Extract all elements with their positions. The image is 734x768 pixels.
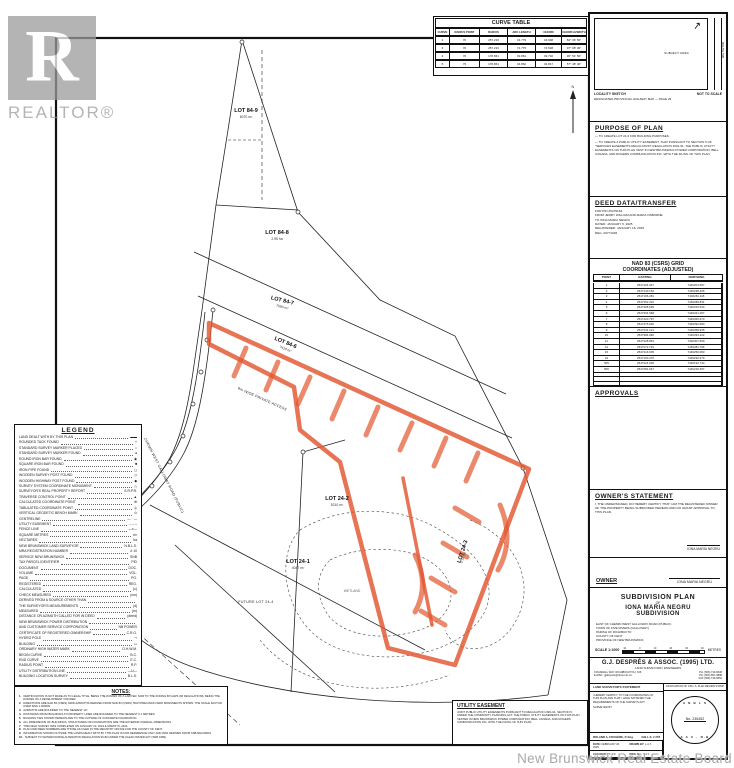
legend-leader bbox=[84, 449, 133, 450]
note-number: 1. bbox=[19, 695, 21, 701]
curve-table-rows: 270 257.21634.779 34.69884° 36' 50" 370 … bbox=[435, 36, 587, 68]
owner-row: OWNER IONA MARIA NEGRU bbox=[590, 558, 726, 588]
note-item: 2. DIRECTIONS ARE NAD 83 (CSRS) GRID AZI… bbox=[19, 702, 223, 708]
legend-leader bbox=[39, 542, 131, 543]
plan-location-line: PROVINCE OF NEW BRUNSWICK bbox=[596, 638, 720, 642]
scale-bar-row: SCALE 1:1000 10010203040 METRES bbox=[590, 645, 726, 658]
north-arrow-icon bbox=[570, 90, 576, 133]
legend-items: LAND DEALT WITH BY THIS PLAN ▬▬ ROUNDED … bbox=[19, 435, 137, 680]
plan-title: SUBDIVISION PLAN OF IONA MARIA NEGRU SUB… bbox=[590, 588, 726, 619]
curve-table-row: 370 257.21674.775 74.52897° 08' 30" bbox=[435, 44, 587, 52]
curve-table-row: 476 178.86139.864 39.79236° 54' 50" bbox=[435, 52, 587, 60]
legend-leader bbox=[45, 667, 129, 668]
legend-leader bbox=[43, 640, 132, 641]
stamp-title: ASSOCIATION OF N.B.L.S. PLAN REVIEW STAM… bbox=[664, 684, 726, 691]
legend-leader bbox=[75, 509, 132, 510]
scale-units: METRES bbox=[708, 648, 721, 652]
realtor-logo-icon: R bbox=[8, 16, 96, 100]
curve-table-header-cell: CURVE bbox=[436, 28, 450, 35]
coords-title-2: COORDINATES (ADJUSTED) bbox=[593, 267, 723, 273]
notes: NOTES: 1. CERTIFICATION IS NOT MADE AS T… bbox=[14, 686, 228, 745]
deed-line: REG. 29771046 bbox=[595, 231, 721, 235]
legend-leader bbox=[94, 487, 132, 488]
legend-leader bbox=[61, 564, 129, 565]
legend-title: LEGEND bbox=[19, 427, 137, 434]
locality-subheading: DESIGNATED PROVINCIAL HIGHWAY MAP — PAGE… bbox=[594, 97, 722, 101]
firm-subtitle: LAND SURVEYORS / ENGINEERS bbox=[594, 666, 722, 670]
route-line: ROUTE 505 bbox=[714, 18, 722, 90]
statement-field: DRAWN BY: L.A.T. bbox=[627, 741, 664, 751]
owner-signature: IONA MARIA NEGRU bbox=[687, 545, 720, 551]
surveyor-name: ROLAND A. FOUGÈRE, P. Eng. bbox=[593, 735, 634, 739]
legend-leader bbox=[61, 444, 133, 445]
surveyor-statement-text: I HEREBY CERTIFY, TO THE COORDINATES OF … bbox=[590, 692, 663, 707]
legend-leader bbox=[50, 536, 131, 537]
map-label-sub: 5210 m² bbox=[331, 503, 344, 507]
legend-leader bbox=[37, 645, 132, 646]
locality-sketch: ↗ SUBJECT AREA ROUTE 505 LOCALITY SKETCH… bbox=[590, 14, 726, 122]
owner-label: OWNER bbox=[596, 578, 617, 584]
stamp-arc-bottom: A A C · N-B bbox=[680, 735, 709, 739]
legend-leader bbox=[67, 672, 126, 673]
note-number: 9. bbox=[19, 732, 21, 735]
locality-title: LOCALITY SKETCH bbox=[594, 92, 626, 96]
surveyor-statement-title: LAND SURVEYOR'S STATEMENT bbox=[590, 684, 663, 692]
legend-leader bbox=[75, 438, 128, 439]
note-item: 10. SUBJECT TO WATERCOURSE ALTERATION RE… bbox=[19, 736, 223, 739]
owner-statement: OWNER'S STATEMENT I, THE UNDERSIGNED, DO… bbox=[590, 490, 726, 558]
legend-leader bbox=[66, 558, 128, 559]
plan-location-lines: EAST OF CHEMIN WEST GALLOWAY ROAD (PUBLI… bbox=[590, 619, 726, 645]
curve-table-row: 576 178.86134.862 34.81757° 48' 40" bbox=[435, 60, 587, 68]
north-arrow-icon: ↗ bbox=[692, 20, 702, 32]
owner-statement-title: OWNER'S STATEMENT bbox=[595, 493, 721, 500]
legend-symbol: (cm) bbox=[130, 593, 137, 598]
legend-leader bbox=[87, 493, 122, 494]
note-item: 9. INFORMATION SHOWN OUTSIDE THE LANDS D… bbox=[19, 732, 223, 735]
legend-leader bbox=[35, 574, 127, 575]
note-item: 1. CERTIFICATION IS NOT MADE AS TO LEGAL… bbox=[19, 695, 223, 701]
firm-address-col: 9 RANDALL WAY, RICHIBOUCTOU, N.B. E-MAIL… bbox=[594, 671, 642, 681]
purpose-item: — TO CREATE LOT 24-3 FOR BUILDING PURPOS… bbox=[595, 134, 721, 138]
curve-table-header-cell: ARC LENGTH bbox=[508, 28, 536, 35]
curve-table-header-cell: RADIUS POINT bbox=[450, 28, 480, 35]
legend-leader bbox=[88, 602, 135, 603]
stamp-arc-top: A N B L S bbox=[683, 701, 707, 705]
legend-leader bbox=[80, 515, 133, 516]
curve-table-headers: CURVERADIUS POINTRADIUSARC LENGTHCHORDCH… bbox=[435, 28, 587, 36]
map-label: LOT 24-2 bbox=[325, 496, 349, 502]
note-item: 4. DISTANCES FROM BUILDINGS TO PROPERTY … bbox=[19, 713, 223, 716]
note-number: 4. bbox=[19, 713, 21, 716]
owner-statement-text: I, THE UNDERSIGNED, DO HEREBY CERTIFY TH… bbox=[595, 502, 721, 515]
legend-leader bbox=[41, 661, 128, 662]
curve-table-row: 270 257.21634.779 34.69884° 36' 50" bbox=[435, 36, 587, 44]
legend-leader bbox=[66, 466, 133, 467]
scale-label: SCALE 1:1000 bbox=[595, 648, 619, 652]
legend-leader bbox=[41, 569, 127, 570]
surveyor-statement: LAND SURVEYOR'S STATEMENT I HEREBY CERTI… bbox=[590, 684, 664, 758]
note-number: 3. bbox=[19, 709, 21, 712]
coords-easting bbox=[620, 382, 671, 387]
utility-easement: UTILITY EASEMENT JOINT PUBLIC UTILITY EA… bbox=[452, 700, 588, 745]
curve-table: CURVE TABLE CURVERADIUS POINTRADIUSARC L… bbox=[433, 16, 589, 76]
surveyed-by-label: SURVEYED BY bbox=[590, 706, 663, 732]
map-label-sub: 2.95 ha bbox=[271, 237, 282, 241]
approvals-section: APPROVALS bbox=[590, 387, 726, 490]
coords-header-easting: EASTING bbox=[620, 275, 671, 281]
firm-block: G.J. DESPRÉS & ASSOC. (1995) LTD. LAND S… bbox=[590, 658, 726, 684]
legend-leader bbox=[75, 477, 133, 478]
legend-leader bbox=[80, 547, 122, 548]
coords-rows: 1 2547104.347 7446204.657 2 2547140.152 … bbox=[593, 283, 723, 387]
firm-phones: PH. (506) 743-8438PH. (506) 857-0898FAX … bbox=[699, 671, 722, 681]
title-block: SUBDIVISION PLAN OF IONA MARIA NEGRU SUB… bbox=[590, 588, 726, 758]
firm-email: E-MAIL: gjdespres@nbnet.nb.ca bbox=[594, 674, 642, 677]
coords-northing bbox=[671, 382, 722, 387]
note-number: 6. bbox=[19, 721, 21, 724]
legend-leader bbox=[70, 678, 126, 679]
survey-markers bbox=[84, 40, 525, 549]
map-label: WETLAND bbox=[344, 589, 361, 593]
map-label: LOT 84-9 bbox=[234, 108, 258, 114]
legend-leader bbox=[42, 520, 125, 521]
firm-phone: FAX (506) 743-8454 bbox=[699, 677, 722, 680]
not-to-scale-label: NOT TO SCALE bbox=[697, 92, 722, 96]
legend-leader bbox=[64, 460, 132, 461]
scale-bar bbox=[622, 650, 704, 654]
legend-leader bbox=[53, 596, 128, 597]
coords-point bbox=[594, 382, 620, 387]
coordinates-table: NAD 83 (CSRS) GRID COORDINATES (ADJUSTED… bbox=[590, 259, 726, 387]
notes-items: 1. CERTIFICATION IS NOT MADE AS TO LEGAL… bbox=[19, 695, 223, 739]
purpose-item: — TO CREATE A PUBLIC UTILITY EASEMENT, T… bbox=[595, 140, 721, 156]
realtor-wordmark: REALTOR® bbox=[8, 103, 115, 123]
note-number: 10. bbox=[19, 736, 23, 739]
map-label: 8m WIDE PRIVATE ACCESS bbox=[237, 386, 288, 411]
review-stamp-area: ASSOCIATION OF N.B.L.S. PLAN REVIEW STAM… bbox=[664, 684, 726, 758]
legend-leader bbox=[93, 634, 124, 635]
legend-leader bbox=[80, 607, 131, 608]
legend-leader bbox=[43, 585, 127, 586]
legend-leader bbox=[70, 553, 128, 554]
map-label: FUTURE LOT 24-4 bbox=[238, 600, 273, 604]
subject-area-label: SUBJECT AREA bbox=[664, 51, 689, 55]
legend-leader bbox=[90, 629, 116, 630]
legend-leader bbox=[44, 656, 128, 657]
deed-title: DEED DATA/TRANSFER bbox=[595, 200, 721, 207]
curve-table-header-cell: CHORD AZIMUTH bbox=[562, 28, 587, 35]
deed-lines: FOR PID 25479154FROM JERRY WILLIAM AND M… bbox=[595, 209, 721, 235]
map-label: LOT 84-8 bbox=[265, 230, 289, 236]
approvals-title: APPROVALS bbox=[595, 390, 721, 397]
right-panel: ↗ SUBJECT AREA ROUTE 505 LOCALITY SKETCH… bbox=[588, 12, 728, 760]
legend-leader bbox=[83, 455, 133, 456]
legend-symbol: (deed) bbox=[127, 614, 137, 619]
subject-lot-highlight bbox=[209, 323, 529, 665]
map-label: CHEMIN WEST GALLOWAY ROAD (PUBLIC) bbox=[143, 437, 185, 514]
coords-header-point: POINT bbox=[594, 275, 620, 281]
legend: LEGEND LAND DEALT WITH BY THIS PLAN ▬▬ R… bbox=[14, 424, 142, 686]
legend-leader bbox=[30, 580, 129, 581]
note-item: 6. ALL DIMENSIONS OF BUILDINGS, STRUCTUR… bbox=[19, 721, 223, 724]
legend-leader bbox=[76, 482, 132, 483]
note-number: 5. bbox=[19, 717, 21, 720]
statement-field: DATE: FEBRUARY 26, 2025 bbox=[590, 741, 627, 751]
locality-sketch-map: ↗ SUBJECT AREA bbox=[594, 18, 708, 90]
map-label: LOT 24-1 bbox=[286, 559, 310, 565]
curve-table-header-cell: CHORD bbox=[536, 28, 562, 35]
legend-leader bbox=[68, 498, 132, 499]
purpose-of-plan: PURPOSE OF PLAN — TO CREATE LOT 24-3 FOR… bbox=[590, 122, 726, 197]
deed-data: DEED DATA/TRANSFER FOR PID 25479154FROM … bbox=[590, 197, 726, 259]
legend-leader bbox=[41, 531, 127, 532]
nbls-stamp: A N B L S No. 235452 A A C · N-B bbox=[671, 696, 719, 744]
route-label: ROUTE 505 bbox=[721, 42, 725, 58]
surveyor-license: N.B.L.S. # 278 bbox=[642, 735, 661, 739]
firm-name: G.J. DESPRÉS & ASSOC. (1995) LTD. bbox=[594, 660, 722, 666]
map-label: N bbox=[572, 85, 575, 89]
utility-title: UTILITY EASEMENT bbox=[457, 703, 583, 709]
legend-leader bbox=[53, 525, 127, 526]
legend-leader bbox=[97, 618, 126, 619]
legend-symbol: B.L.S. bbox=[128, 674, 137, 679]
curve-table-header-cell: RADIUS bbox=[480, 28, 508, 35]
map-label-sub: 6070 m² bbox=[240, 115, 253, 119]
legend-leader bbox=[40, 612, 130, 613]
coords-header-northing: NORTHING bbox=[671, 275, 722, 281]
legend-leader bbox=[89, 623, 135, 624]
notes-title: NOTES: bbox=[19, 689, 223, 695]
stamp-number: No. 235452 bbox=[684, 717, 707, 722]
board-watermark: New Brunswick Real Estate Board bbox=[517, 751, 732, 766]
legend-item: BUILDING LOCATION SURVEY B.L.S. bbox=[19, 674, 137, 679]
legend-leader bbox=[43, 591, 131, 592]
purpose-title: PURPOSE OF PLAN bbox=[595, 125, 721, 132]
purpose-items: — TO CREATE LOT 24-3 FOR BUILDING PURPOS… bbox=[595, 134, 721, 156]
subdivision-plan-sheet: LOT 84-96070 m²LOT 84-82.95 haLOT 84-775… bbox=[0, 0, 734, 768]
legend-leader bbox=[51, 471, 132, 472]
legend-leader bbox=[78, 504, 132, 505]
note-item: 5. BUILDING TIES SHOWN HEREON ARE TO THE… bbox=[19, 717, 223, 720]
wetland-contours bbox=[260, 511, 524, 688]
note-item: 3. AZIMUTHS ARE ROUNDED TO THE NEAREST 1… bbox=[19, 709, 223, 712]
legend-leader bbox=[72, 651, 121, 652]
curve-table-title: CURVE TABLE bbox=[435, 18, 587, 28]
note-number: 2. bbox=[19, 702, 21, 708]
map-label-sub: 4047 m² bbox=[292, 566, 305, 570]
owner-row-signature: IONA MARIA NEGRU bbox=[669, 578, 720, 584]
realtor-watermark: R REALTOR® bbox=[8, 16, 115, 123]
utility-text: JOINT PUBLIC UTILITY EASEMENTS PURSUANT … bbox=[457, 711, 583, 726]
